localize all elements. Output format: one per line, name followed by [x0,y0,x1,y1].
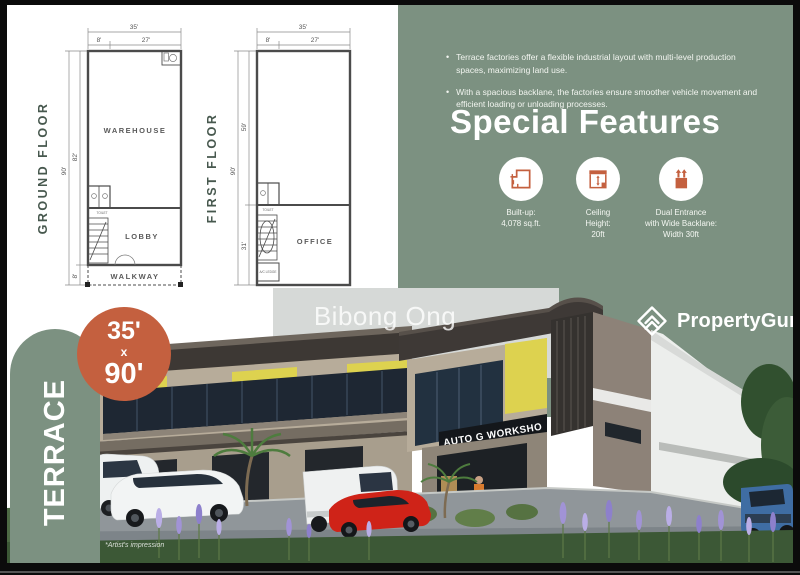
ceiling-height-icon [585,166,611,192]
feature-dual-entrance: Dual Entrance with Wide Backlane: Width … [625,157,737,240]
size-width: 35' [107,319,141,344]
built-up-floorplan-icon [508,166,534,192]
bullet-dot: • [446,86,449,112]
dim-label: 27' [311,37,319,44]
dim-label: 8' [97,37,102,44]
first-floor-plan: FIRST FLOOR 35' 8' 27' 90' 59' 31' TOILE… [205,24,350,285]
room-label: A/C LEDGE [259,270,276,274]
propertyguru-logo: PropertyGuru [635,304,793,338]
dual-entrance-icon [668,166,694,192]
terrace-label: TERRACE [39,379,72,526]
size-x: x [121,346,128,358]
bullet-text: Terrace factories offer a flexible indus… [456,51,766,77]
room-label: TOILET [96,211,107,215]
dim-label: 90' [61,167,68,175]
size-depth: 90' [104,360,143,389]
room-label: OFFICE [297,237,334,246]
dim-label: 82' [72,153,79,161]
watermark-text: Bibong Ong [295,301,475,332]
feature-label: Dual Entrance with Wide Backlane: Width … [625,208,737,240]
dim-label: 35' [299,24,307,31]
bullet-dot: • [446,51,449,77]
special-features-heading: Special Features [450,103,720,141]
dim-label: 90' [230,167,237,175]
feature-circle [499,157,543,201]
brochure-image: • Terrace factories offer a flexible ind… [7,5,793,563]
room-label: WAREHOUSE [104,126,167,135]
propertyguru-icon [635,304,669,338]
room-label: TOILET [262,208,273,212]
dim-label: 35' [130,24,138,31]
ground-floor-title: GROUND FLOOR [36,102,50,235]
feature-circle [576,157,620,201]
listing-photo-viewer: { "brand": {"name": "PropertyGuru"}, "wa… [0,0,800,575]
dim-label: 59' [241,123,248,131]
artist-impression-note: *Artist's impression [105,542,164,549]
dim-label: 8' [266,37,271,44]
floor-plans: GROUND FLOOR 35' 8' 27' 90' 82' 8' [7,5,398,310]
first-floor-title: FIRST FLOOR [205,113,219,224]
viewer-bottom-edge [0,571,800,573]
size-badge: 35' x 90' [77,307,171,401]
feature-circle [659,157,703,201]
propertyguru-wordmark: PropertyGuru [677,310,793,333]
ground-floor-plan: GROUND FLOOR 35' 8' 27' 90' 82' 8' [36,24,183,287]
dim-label: 27' [142,37,150,44]
feature-bullet: • Terrace factories offer a flexible ind… [446,51,766,77]
room-label: LOBBY [125,232,159,241]
dim-label: 31' [241,242,248,250]
dim-label: 8' [72,274,79,279]
